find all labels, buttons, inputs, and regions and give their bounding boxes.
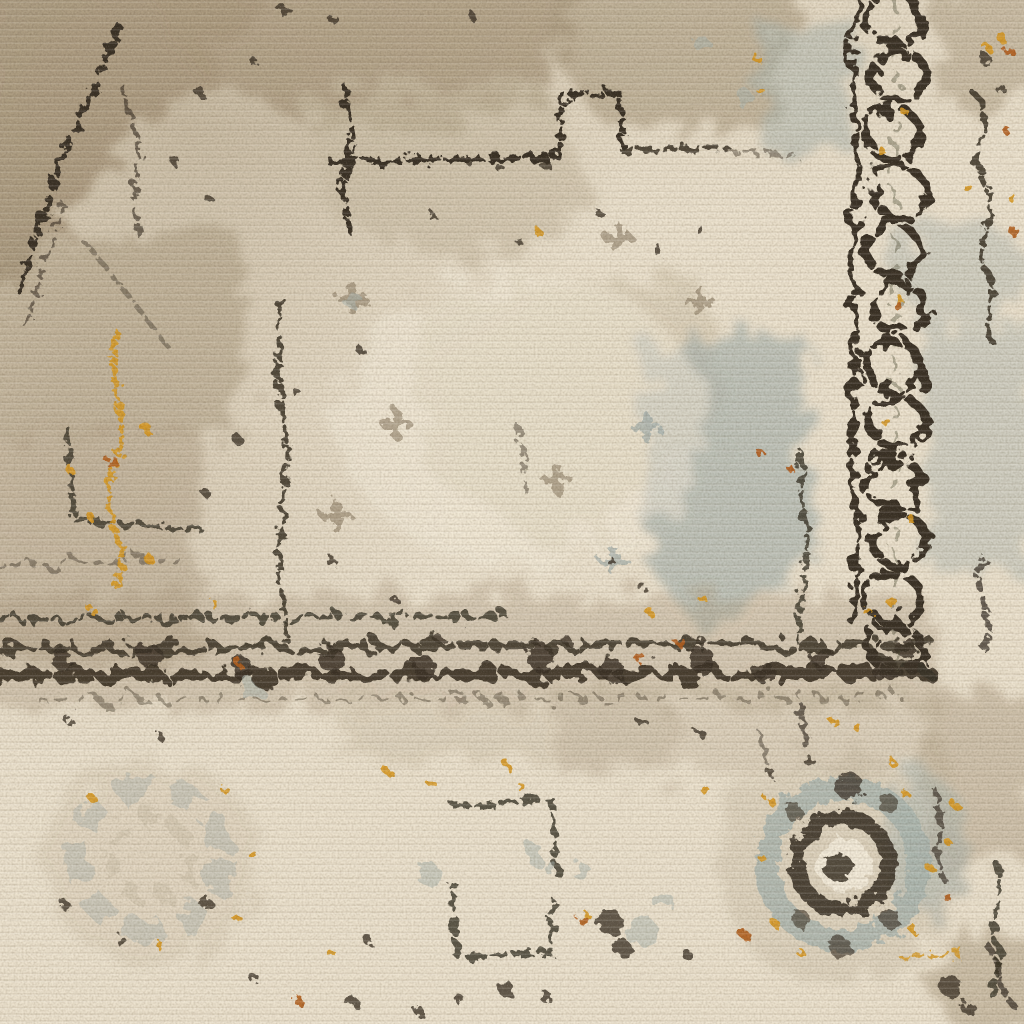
- rug-closeup-photo: Overhead close-up photograph of a distre…: [0, 0, 1024, 1024]
- rug-pattern-art: [0, 0, 1024, 1024]
- chain-border-band: [850, 0, 926, 673]
- taupe-washes: [0, 0, 1024, 1024]
